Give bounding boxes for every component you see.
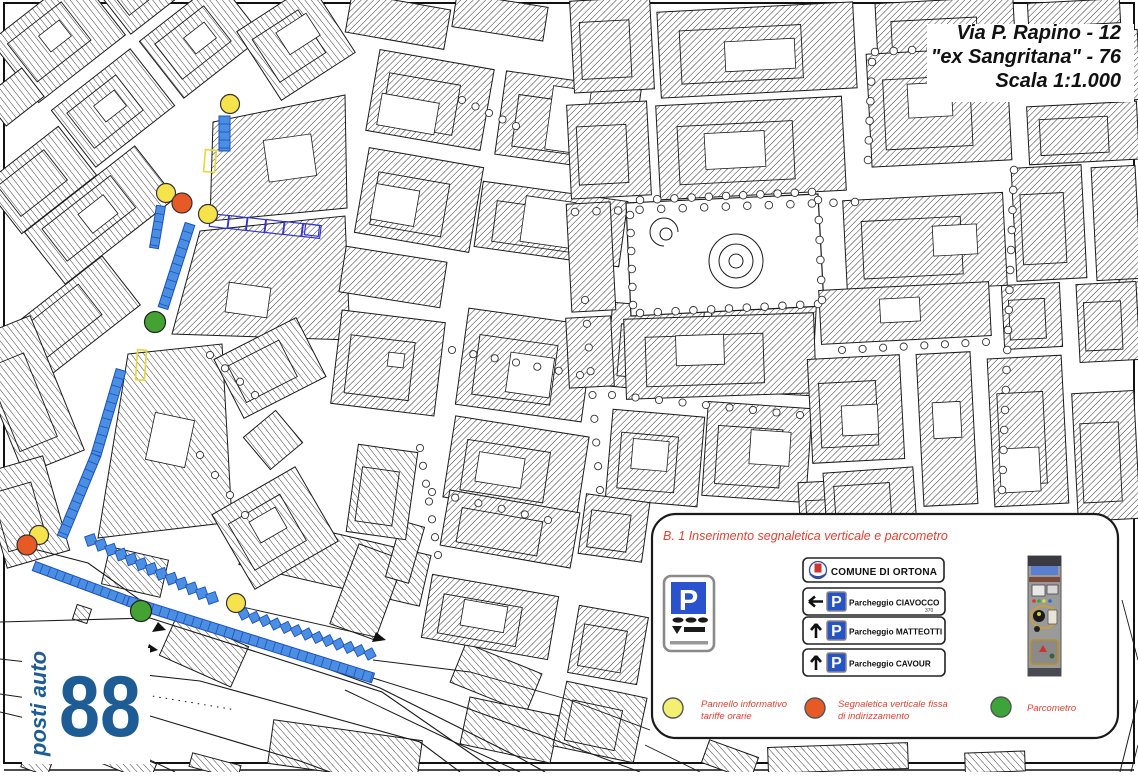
svg-text:P: P [831,594,842,611]
svg-text:tariffe orarie: tariffe orarie [701,711,752,722]
svg-text:P: P [831,623,842,640]
svg-text:COMUNE DI ORTONA: COMUNE DI ORTONA [831,567,937,578]
svg-text:P: P [831,655,842,672]
svg-text:Scala 1:1.000: Scala 1:1.000 [995,70,1121,92]
svg-text:88: 88 [59,659,141,755]
svg-text:P: P [679,585,698,617]
svg-text:Via P. Rapino - 12: Via P. Rapino - 12 [956,22,1121,44]
svg-text:Parcometro: Parcometro [1027,703,1076,714]
svg-text:Pannello informativo: Pannello informativo [701,699,787,710]
svg-text:di indirizzamento: di indirizzamento [838,711,909,722]
svg-text:Parcheggio CIAVOCCO: Parcheggio CIAVOCCO [849,599,940,608]
svg-text:Parcheggio MATTEOTTI: Parcheggio MATTEOTTI [849,628,942,637]
svg-text:370: 370 [925,608,934,614]
svg-text:B. 1 Inserimento segnaletica v: B. 1 Inserimento segnaletica verticale e… [663,529,948,543]
svg-text:Parcheggio CAVOUR: Parcheggio CAVOUR [849,660,931,669]
svg-text:posti auto: posti auto [26,651,51,757]
svg-text:"ex Sangritana" - 76: "ex Sangritana" - 76 [931,46,1122,68]
svg-text:Segnaletica verticale fissa: Segnaletica verticale fissa [838,699,948,710]
